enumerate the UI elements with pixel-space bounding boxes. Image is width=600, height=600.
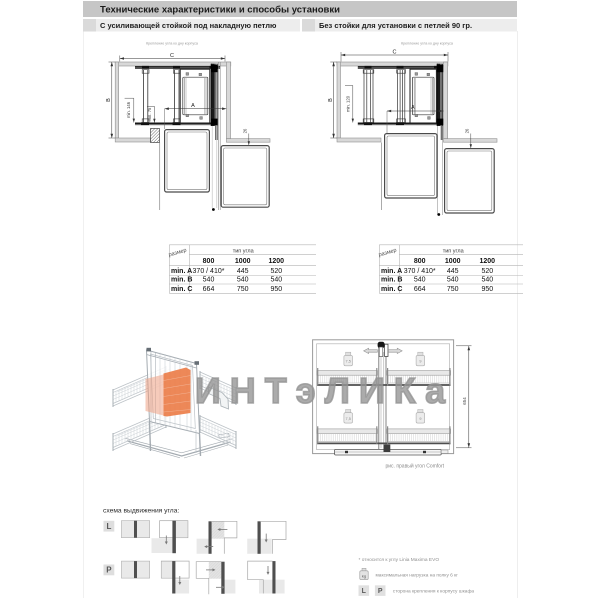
svg-text:P: P	[106, 566, 112, 575]
svg-text:9: 9	[419, 360, 421, 364]
svg-text:размер: размер	[378, 248, 397, 259]
svg-text:540: 540	[270, 277, 282, 284]
svg-text:654: 654	[462, 397, 467, 405]
svg-text:* относится к углу Linia Maxim: * относится к углу Linia Maxima EVO	[359, 557, 440, 563]
svg-text:min. 146: min. 146	[126, 101, 131, 118]
svg-text:B: B	[328, 98, 334, 102]
svg-text:тип угла: тип угла	[443, 249, 465, 255]
svg-text:тип угла: тип угла	[233, 249, 255, 255]
svg-text:750: 750	[447, 286, 459, 293]
svg-text:min. C: min. C	[381, 286, 402, 293]
svg-text:7,5: 7,5	[346, 360, 351, 364]
svg-text:ИНТэЛИКа: ИНТэЛИКа	[195, 370, 454, 411]
svg-text:7,5: 7,5	[346, 417, 351, 421]
svg-text:1200: 1200	[269, 258, 285, 265]
svg-text:664: 664	[203, 286, 215, 293]
svg-text:min. B: min. B	[171, 277, 192, 284]
svg-text:370 / 410*: 370 / 410*	[193, 268, 225, 275]
svg-text:B: B	[106, 98, 112, 102]
svg-text:С усиливающей стойкой под накл: С усиливающей стойкой под накладную петл…	[100, 21, 277, 30]
svg-text:схема выдвижения угла:: схема выдвижения угла:	[103, 508, 179, 515]
svg-text:min. C: min. C	[171, 286, 192, 293]
svg-text:C: C	[170, 53, 174, 59]
svg-text:750: 750	[237, 286, 249, 293]
svg-text:A: A	[191, 103, 195, 109]
svg-text:Без стойки для установки с пет: Без стойки для установки с петлей 90 гр.	[319, 21, 472, 30]
svg-text:L: L	[106, 522, 111, 531]
svg-text:A: A	[411, 105, 415, 111]
svg-text:рис. правый угол Comfort: рис. правый угол Comfort	[385, 463, 444, 470]
svg-text:C: C	[393, 49, 397, 55]
svg-text:P: P	[378, 588, 383, 595]
svg-text:540: 540	[203, 277, 215, 284]
svg-text:min. B: min. B	[381, 277, 402, 284]
svg-text:min. A: min. A	[171, 268, 192, 275]
svg-text:950: 950	[481, 286, 493, 293]
svg-text:сторона крепления к корпусу шк: сторона крепления к корпусу шкафа	[393, 589, 475, 595]
svg-text:540: 540	[237, 277, 249, 284]
svg-text:1200: 1200	[480, 258, 496, 265]
svg-text:Технические характеристики и с: Технические характеристики и способы уст…	[100, 5, 340, 16]
svg-text:min. 120: min. 120	[346, 95, 351, 112]
svg-text:370 / 410*: 370 / 410*	[404, 268, 436, 275]
svg-text:Крепление угла ко дну корпуса: Крепление угла ко дну корпуса	[401, 41, 453, 45]
svg-text:445: 445	[447, 268, 459, 275]
svg-text:Крепление угла ко дну корпуса: Крепление угла ко дну корпуса	[146, 41, 198, 45]
svg-text:800: 800	[414, 258, 426, 265]
svg-text:520: 520	[481, 268, 493, 275]
svg-text:L: L	[362, 588, 367, 595]
svg-text:540: 540	[414, 277, 426, 284]
svg-text:1000: 1000	[235, 258, 251, 265]
svg-text:520: 520	[270, 268, 282, 275]
svg-text:kg: kg	[362, 574, 366, 579]
svg-text:540: 540	[447, 277, 459, 284]
svg-text:min. 75: min. 75	[147, 107, 152, 121]
svg-text:664: 664	[414, 286, 426, 293]
svg-text:540: 540	[481, 277, 493, 284]
svg-text:445: 445	[237, 268, 249, 275]
svg-text:800: 800	[203, 258, 215, 265]
svg-text:1000: 1000	[445, 258, 461, 265]
svg-text:максимальная нагрузка на полку: максимальная нагрузка на полку 6 кг	[376, 573, 459, 579]
svg-text:min. A: min. A	[381, 268, 402, 275]
svg-text:9: 9	[419, 417, 421, 421]
svg-text:950: 950	[270, 286, 282, 293]
svg-text:размер: размер	[168, 248, 187, 259]
svg-text:26: 26	[242, 128, 247, 133]
svg-text:26: 26	[464, 128, 469, 133]
